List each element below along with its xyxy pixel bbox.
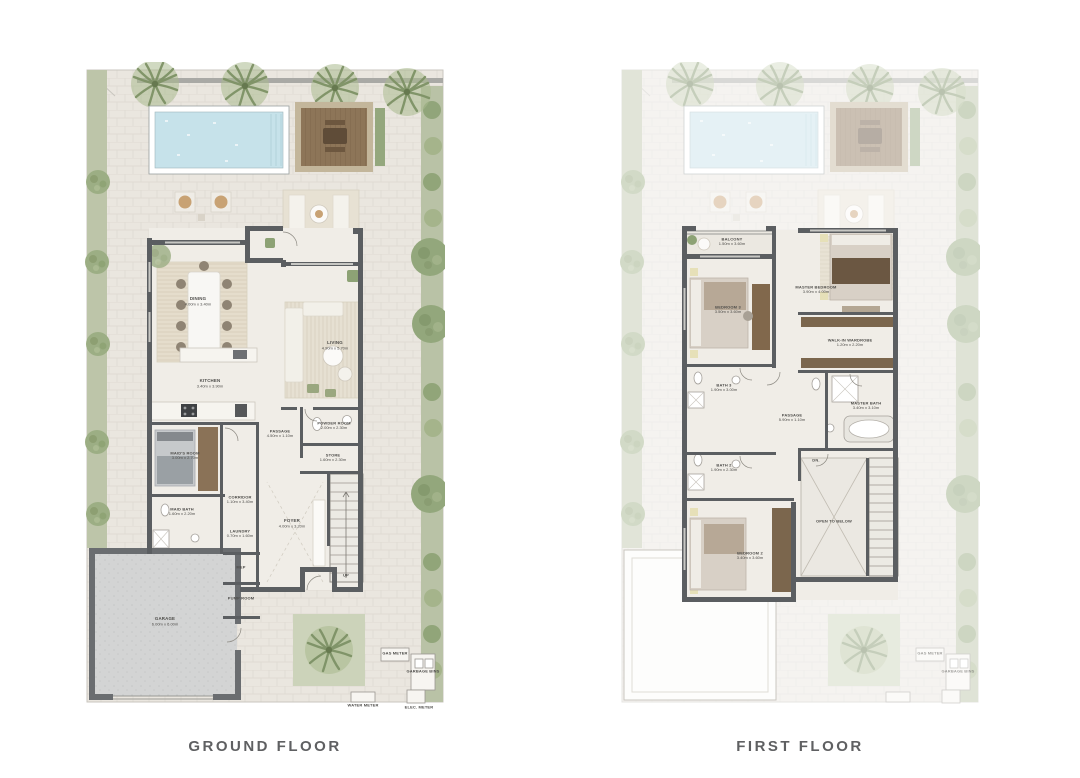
floorplan-sheet: { "document": { "type": "villa floor pla… <box>0 0 1080 778</box>
first-floor-drawing <box>620 62 980 707</box>
open-to-below <box>801 458 867 576</box>
first-floor-title: FIRST FLOOR <box>620 738 980 755</box>
ground-floor-drawing <box>85 62 445 707</box>
first-floor-plan: BALCONY1.50m x 3.60m BEDROOM 33.50m x 3.… <box>620 62 980 707</box>
garage <box>89 548 241 700</box>
balcony <box>686 230 772 256</box>
ground-floor-title: GROUND FLOOR <box>85 738 445 755</box>
bedroom2 <box>690 508 791 594</box>
ground-floor-plan: DINING4.00m x 3.40m LIVING4.90m x 5.70m … <box>85 62 445 707</box>
